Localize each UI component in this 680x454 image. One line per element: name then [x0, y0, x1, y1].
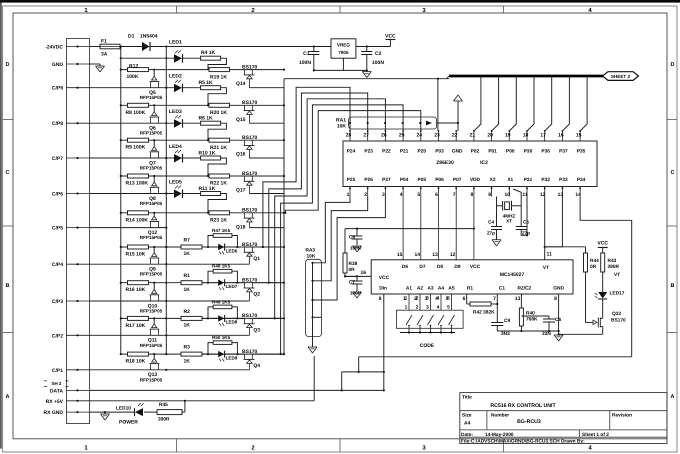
svg-text:R44: R44	[590, 258, 599, 264]
svg-text:25: 25	[399, 133, 405, 139]
svg-text:R10 1K: R10 1K	[199, 150, 216, 156]
svg-text:A2: A2	[417, 286, 423, 292]
svg-text:R14 100K: R14 100K	[126, 217, 149, 223]
svg-text:BS170: BS170	[611, 318, 626, 324]
svg-text:26: 26	[381, 133, 387, 139]
svg-text:1: 1	[405, 296, 408, 302]
svg-text:P06: P06	[435, 177, 444, 183]
svg-text:C5: C5	[523, 220, 529, 225]
svg-text:R48 1K5: R48 1K5	[212, 264, 231, 269]
svg-text:0R: 0R	[349, 267, 356, 273]
svg-text:RX GND: RX GND	[44, 410, 64, 416]
svg-text:POWER: POWER	[119, 420, 138, 426]
svg-text:A: A	[671, 394, 675, 400]
svg-text:D: D	[6, 62, 10, 68]
svg-text:VT: VT	[543, 265, 549, 271]
svg-text:X1: X1	[507, 177, 513, 183]
svg-text:3A: 3A	[101, 52, 108, 58]
svg-text:P07: P07	[453, 177, 462, 183]
svg-text:15: 15	[397, 252, 403, 258]
svg-text:A3: A3	[427, 286, 433, 292]
svg-text:7805: 7805	[338, 50, 349, 55]
svg-text:20: 20	[487, 133, 493, 139]
svg-text:7: 7	[493, 296, 496, 302]
svg-text:LED2: LED2	[169, 74, 182, 80]
svg-text:R7: R7	[184, 238, 191, 244]
svg-text:4MHZ: 4MHZ	[503, 213, 516, 218]
svg-text:LED6: LED6	[226, 248, 238, 253]
svg-text:10K: 10K	[337, 124, 347, 130]
svg-text:C/P8: C/P8	[52, 121, 63, 127]
svg-text:C8: C8	[349, 235, 355, 241]
svg-text:Q18: Q18	[236, 224, 246, 230]
svg-text:27p: 27p	[522, 231, 530, 236]
svg-text:P21: P21	[400, 149, 409, 155]
svg-text:R1: R1	[184, 273, 191, 279]
svg-text:R6 1K: R6 1K	[199, 116, 214, 122]
svg-text:BS170: BS170	[242, 171, 258, 177]
svg-text:R5 1K: R5 1K	[199, 80, 214, 86]
svg-text:Number: Number	[491, 413, 509, 419]
svg-text:1K: 1K	[184, 323, 191, 329]
svg-text:R50 1K5: R50 1K5	[212, 335, 231, 340]
svg-text:RFP15P05: RFP15P05	[140, 95, 163, 100]
svg-text:RFP15P05: RFP15P05	[140, 131, 163, 136]
svg-text:18: 18	[523, 133, 529, 139]
svg-text:R1: R1	[467, 286, 473, 292]
svg-text:100N: 100N	[299, 60, 311, 66]
svg-text:21: 21	[470, 133, 476, 139]
svg-text:R8 100K: R8 100K	[126, 110, 146, 116]
svg-text:P35: P35	[577, 149, 586, 155]
svg-text:R38: R38	[349, 261, 358, 267]
svg-text:D: D	[671, 62, 675, 68]
svg-text:IC2: IC2	[480, 160, 488, 166]
svg-text:D9: D9	[454, 264, 460, 270]
svg-text:LED7: LED7	[226, 284, 238, 289]
svg-text:X2: X2	[490, 177, 496, 183]
svg-text:6: 6	[435, 192, 438, 198]
svg-text:R2: R2	[184, 309, 191, 315]
svg-text:P34: P34	[577, 177, 586, 183]
svg-text:10K: 10K	[307, 254, 316, 260]
svg-text:GND: GND	[452, 149, 463, 155]
svg-text:BG-RCU3: BG-RCU3	[517, 419, 541, 425]
svg-text:P26: P26	[364, 177, 373, 183]
svg-text:R3: R3	[184, 345, 191, 351]
svg-text:14-May-2000: 14-May-2000	[485, 432, 514, 438]
svg-text:3: 3	[426, 305, 429, 311]
svg-text:C7: C7	[349, 280, 355, 286]
svg-text:C: C	[671, 170, 675, 176]
svg-text:C/P3: C/P3	[52, 299, 63, 305]
svg-text:MC145027: MC145027	[500, 272, 525, 278]
svg-text:A4: A4	[438, 286, 444, 292]
svg-text:VDD: VDD	[470, 177, 481, 183]
svg-text:GND: GND	[52, 62, 64, 68]
svg-text:24: 24	[417, 133, 423, 139]
svg-text:-24VDC: -24VDC	[45, 45, 63, 51]
svg-text:1: 1	[347, 192, 350, 198]
svg-text:LED9: LED9	[226, 355, 238, 360]
svg-text:BS170: BS170	[242, 135, 258, 141]
svg-text:P32: P32	[541, 177, 550, 183]
svg-text:2: 2	[364, 192, 367, 198]
svg-text:C: C	[6, 170, 10, 176]
svg-text:12: 12	[450, 252, 456, 258]
svg-text:LED17: LED17	[610, 291, 625, 297]
svg-text:C4: C4	[488, 220, 494, 225]
svg-text:9: 9	[379, 296, 382, 302]
svg-text:RX +5V: RX +5V	[46, 399, 64, 405]
svg-text:A: A	[6, 394, 10, 400]
svg-text:19: 19	[505, 133, 511, 139]
svg-text:Q14: Q14	[236, 81, 246, 87]
svg-text:10: 10	[505, 192, 511, 198]
svg-text:B: B	[671, 283, 675, 289]
svg-text:R9 100K: R9 100K	[126, 145, 146, 151]
svg-text:BS170: BS170	[242, 208, 258, 214]
svg-text:CODE: CODE	[420, 343, 435, 349]
svg-text:P25: P25	[347, 177, 356, 183]
svg-text:RFP15P05: RFP15P05	[140, 377, 163, 382]
svg-text:RC516 RX CONTROL UNIT: RC516 RX CONTROL UNIT	[490, 403, 556, 409]
svg-text:D1: D1	[128, 34, 135, 40]
svg-text:27p: 27p	[487, 231, 495, 236]
svg-text:C1: C1	[499, 286, 505, 292]
svg-text:SHEET 2: SHEET 2	[611, 74, 631, 79]
svg-text:R11 1K: R11 1K	[199, 186, 216, 192]
svg-text:SH 2: SH 2	[52, 381, 62, 386]
svg-text:P33: P33	[559, 177, 568, 183]
svg-text:14: 14	[415, 252, 421, 258]
svg-text:VCC: VCC	[470, 264, 481, 270]
svg-text:RFP15P05: RFP15P05	[140, 201, 163, 206]
svg-text:LED8: LED8	[226, 320, 238, 325]
svg-text:~: ~	[65, 384, 69, 391]
svg-text:R17 10K: R17 10K	[126, 323, 146, 329]
svg-text:LED5: LED5	[169, 180, 182, 186]
svg-text:C2: C2	[375, 51, 382, 57]
svg-text:File:C:\ADVSCH\MAXIGRND\BG-RCU: File:C:\ADVSCH\MAXIGRND\BG-RCU3.SCH Draw…	[461, 439, 585, 445]
svg-text:P31: P31	[524, 177, 533, 183]
svg-text:P04: P04	[400, 177, 409, 183]
svg-text:R13 100K: R13 100K	[126, 181, 149, 187]
svg-text:5: 5	[417, 192, 420, 198]
svg-text:VCC: VCC	[597, 241, 608, 247]
svg-text:VREG: VREG	[337, 43, 350, 48]
svg-text:VCC: VCC	[385, 34, 396, 40]
svg-text:A5: A5	[448, 286, 454, 292]
svg-text:0R: 0R	[590, 264, 597, 270]
svg-text:1K: 1K	[184, 358, 191, 364]
svg-text:C9: C9	[504, 318, 510, 324]
svg-text:390R: 390R	[608, 264, 620, 270]
svg-text:Sheet 1 of 2: Sheet 1 of 2	[582, 432, 609, 438]
svg-text:LED3: LED3	[169, 109, 182, 115]
svg-text:Size: Size	[462, 413, 472, 419]
svg-text:R43: R43	[608, 258, 617, 264]
svg-text:17: 17	[540, 133, 546, 139]
svg-text:R12: R12	[129, 63, 138, 69]
svg-text:390R: 390R	[158, 417, 170, 423]
svg-text:C/P7: C/P7	[52, 156, 63, 162]
svg-text:3: 3	[382, 192, 385, 198]
svg-text:P23: P23	[364, 149, 373, 155]
svg-text:Q33: Q33	[612, 311, 621, 317]
svg-text:768K: 768K	[526, 317, 538, 323]
svg-text:P30: P30	[524, 149, 533, 155]
svg-text:VCC: VCC	[379, 275, 390, 281]
svg-text:16: 16	[558, 133, 564, 139]
svg-text:Q15: Q15	[236, 117, 246, 123]
svg-text:BS170: BS170	[242, 64, 258, 70]
svg-text:Q2: Q2	[253, 292, 260, 298]
svg-text:7: 7	[453, 192, 456, 198]
svg-text:28: 28	[346, 133, 352, 139]
svg-text:F1: F1	[101, 39, 107, 45]
svg-text:11: 11	[547, 252, 553, 258]
svg-text:Date:: Date:	[461, 432, 473, 438]
svg-text:P22: P22	[382, 149, 391, 155]
svg-text:1K: 1K	[184, 287, 191, 293]
svg-text:D7: D7	[419, 264, 425, 270]
svg-text:P36: P36	[541, 149, 550, 155]
svg-text:P02: P02	[471, 149, 480, 155]
svg-text:C/P5: C/P5	[52, 226, 63, 232]
svg-text:P00: P00	[506, 149, 515, 155]
svg-text:P37: P37	[559, 149, 568, 155]
svg-text:33N: 33N	[542, 331, 551, 337]
svg-text:Q4: Q4	[253, 363, 260, 369]
svg-text:3N3: 3N3	[501, 331, 510, 337]
svg-text:15: 15	[576, 133, 582, 139]
svg-text:22: 22	[452, 133, 458, 139]
svg-text:LED4: LED4	[169, 144, 182, 150]
svg-text:100N: 100N	[372, 60, 384, 66]
svg-text:LED10: LED10	[116, 406, 131, 412]
svg-text:P05: P05	[418, 177, 427, 183]
svg-text:1N5404: 1N5404	[140, 34, 158, 40]
svg-text:4: 4	[437, 296, 440, 302]
svg-text:RFP15P05: RFP15P05	[140, 272, 163, 277]
svg-text:5: 5	[447, 305, 450, 311]
svg-text:RFP15P05: RFP15P05	[140, 343, 163, 348]
svg-text:Title: Title	[462, 394, 472, 400]
svg-text:4: 4	[437, 305, 440, 311]
svg-text:R23 1K: R23 1K	[210, 218, 227, 224]
svg-text:A1: A1	[406, 286, 412, 292]
svg-text:D6: D6	[402, 264, 408, 270]
svg-text:VT: VT	[614, 272, 620, 278]
svg-text:5: 5	[447, 296, 450, 302]
svg-text:Z86E30: Z86E30	[436, 160, 454, 166]
svg-text:R4 1K: R4 1K	[201, 50, 216, 56]
svg-text:8: 8	[471, 192, 474, 198]
svg-text:R47 1K5: R47 1K5	[212, 228, 231, 233]
svg-text:9: 9	[488, 192, 491, 198]
svg-text:R2/C2: R2/C2	[517, 286, 531, 292]
svg-text:P24: P24	[347, 149, 356, 155]
svg-text:1K: 1K	[184, 251, 191, 257]
svg-text:Revision: Revision	[612, 413, 632, 419]
svg-text:LED1: LED1	[169, 40, 182, 46]
svg-text:Q16: Q16	[236, 152, 246, 158]
svg-text:RA3: RA3	[306, 248, 316, 254]
svg-text:3: 3	[426, 296, 429, 302]
svg-text:D8: D8	[437, 264, 443, 270]
svg-text:~: ~	[44, 384, 48, 391]
svg-text:13: 13	[515, 296, 521, 302]
svg-text:XT: XT	[506, 219, 512, 224]
svg-text:C/P4: C/P4	[52, 262, 63, 268]
svg-text:R16 10K: R16 10K	[126, 287, 146, 293]
svg-text:RFP15P05: RFP15P05	[140, 166, 163, 171]
svg-text:C/P2: C/P2	[52, 333, 63, 339]
svg-text:6: 6	[463, 296, 466, 302]
svg-text:2: 2	[416, 296, 419, 302]
svg-text:27: 27	[363, 133, 369, 139]
svg-text:R49 1K5: R49 1K5	[212, 299, 231, 304]
svg-text:16: 16	[360, 270, 366, 276]
svg-text:8: 8	[554, 296, 557, 302]
svg-text:R45: R45	[159, 402, 168, 408]
svg-text:R15 10K: R15 10K	[126, 252, 146, 258]
svg-text:C/P6: C/P6	[52, 192, 63, 198]
svg-text:Q1: Q1	[253, 256, 260, 262]
svg-text:Q3: Q3	[253, 327, 260, 333]
svg-text:2: 2	[416, 305, 419, 311]
svg-text:RFP15P05: RFP15P05	[140, 235, 163, 240]
svg-text:C1: C1	[303, 51, 310, 57]
svg-text:GND: GND	[553, 286, 564, 292]
svg-text:P27: P27	[382, 177, 391, 183]
svg-text:BS170: BS170	[242, 100, 258, 106]
svg-text:C/P1: C/P1	[52, 368, 63, 374]
svg-text:1: 1	[405, 305, 408, 311]
svg-text:4: 4	[400, 192, 403, 198]
svg-text:100K: 100K	[127, 74, 139, 80]
svg-text:B: B	[6, 283, 10, 289]
svg-text:DIn: DIn	[379, 286, 387, 292]
svg-text:Q17: Q17	[236, 188, 246, 194]
svg-text:13: 13	[432, 252, 438, 258]
svg-text:P01: P01	[488, 149, 497, 155]
svg-text:R18 10K: R18 10K	[126, 359, 146, 365]
svg-text:C/P9: C/P9	[52, 86, 63, 92]
svg-text:P20: P20	[418, 149, 427, 155]
svg-text:R42 382K: R42 382K	[473, 310, 495, 316]
svg-text:DATA: DATA	[50, 388, 64, 394]
svg-text:RFP15P05: RFP15P05	[140, 309, 163, 314]
svg-text:P03: P03	[435, 149, 444, 155]
svg-text:23: 23	[434, 133, 440, 139]
svg-text:A4: A4	[464, 421, 471, 427]
